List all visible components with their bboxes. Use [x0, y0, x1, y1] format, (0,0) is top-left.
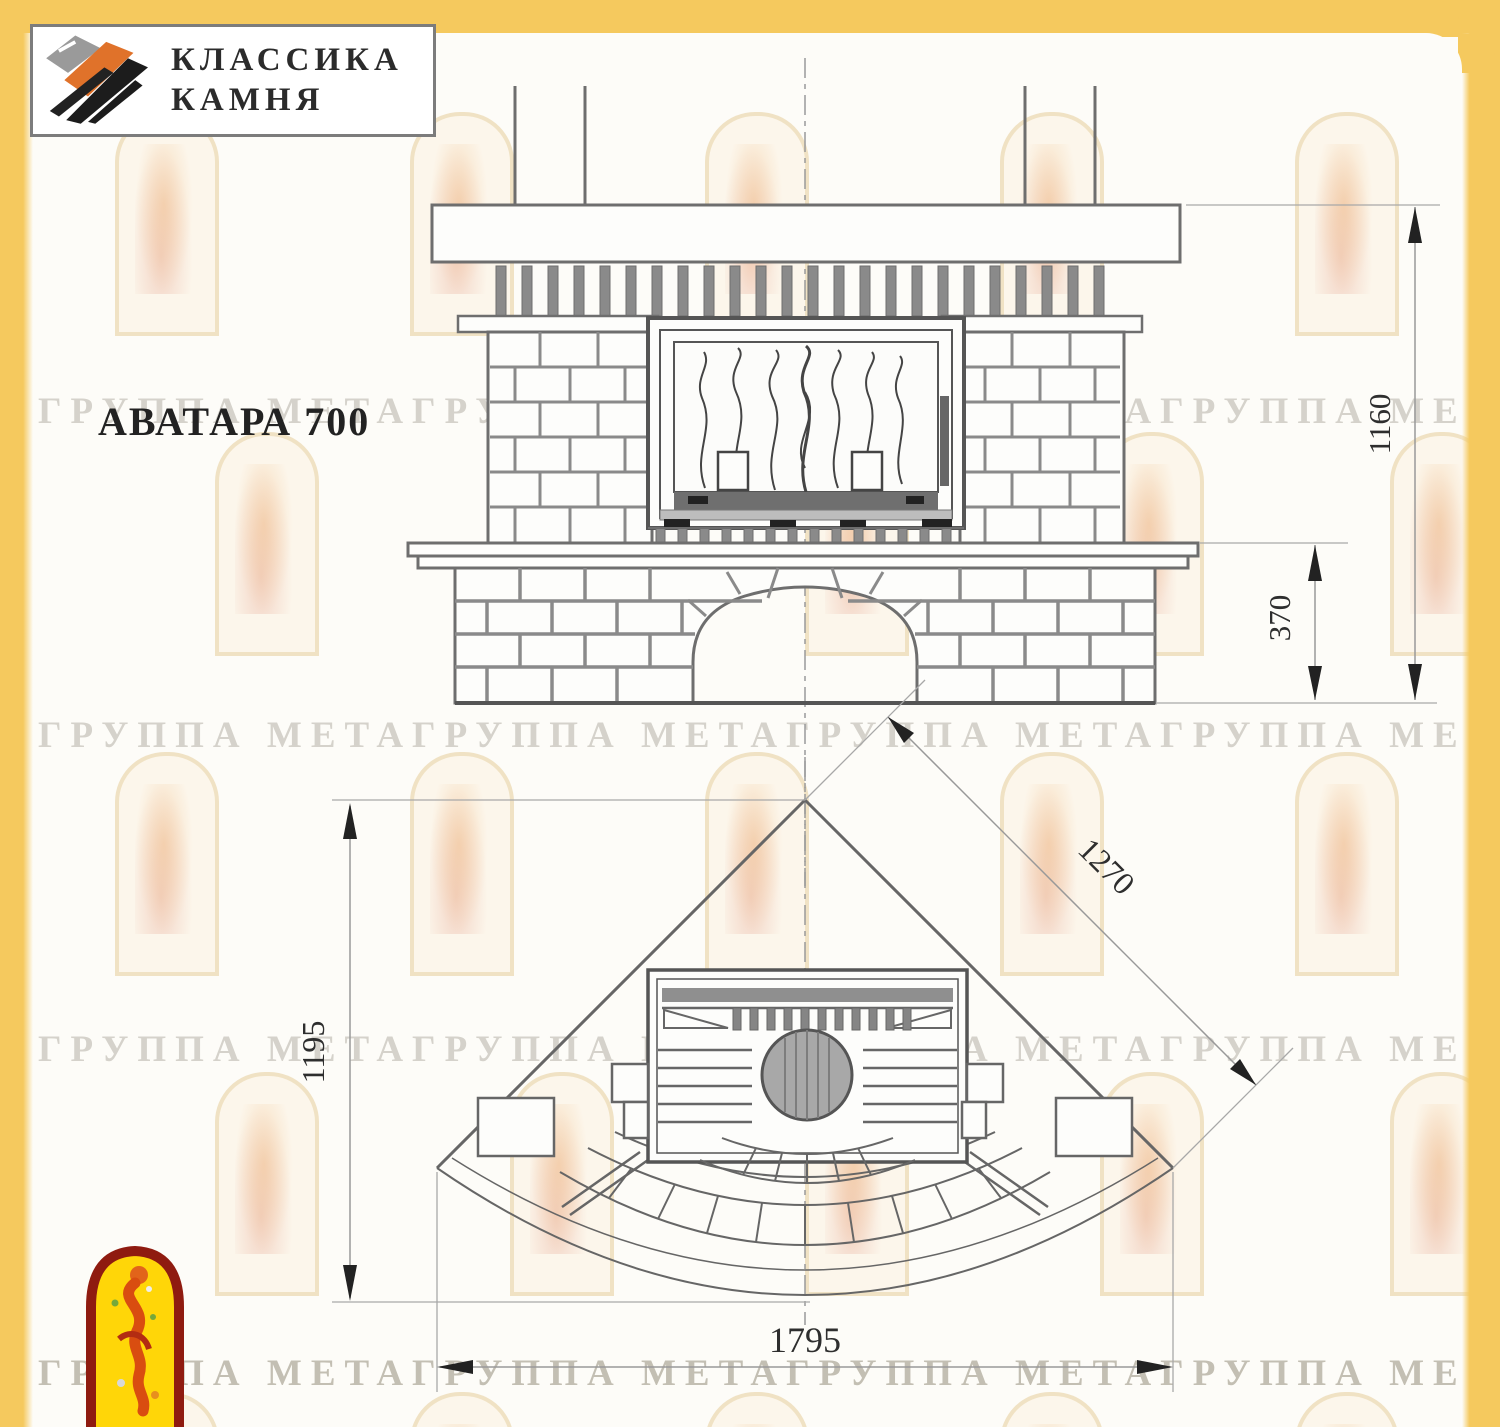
door-handle [688, 496, 708, 504]
dimension-height: 1160 [1362, 394, 1397, 455]
brand-name-line2: КАМНЯ [171, 81, 403, 121]
brand-name-line1: КЛАССИКА [171, 41, 403, 81]
firebox-plan [612, 970, 1003, 1183]
fireplace-technical-drawing: 1160 370 [0, 0, 1500, 1427]
mantel-shelf [432, 205, 1180, 262]
right-step [967, 1064, 1003, 1102]
dimension-plinth-height: 370 [1262, 595, 1297, 642]
frame-left-bar [0, 0, 33, 1427]
dimension-side-length: 1270 [1071, 831, 1142, 902]
firebox [648, 318, 964, 528]
right-cornice [942, 316, 1142, 332]
left-bench [478, 1098, 554, 1156]
door-latch [906, 496, 924, 504]
stone-logo-icon [33, 31, 163, 131]
elevation-dimensions: 1160 370 [1157, 205, 1440, 703]
door-bottom-band [674, 492, 938, 510]
hearth-shelf-upper [408, 543, 1198, 556]
log-right [852, 452, 882, 490]
left-step [612, 1064, 648, 1102]
page: ГРУППА МЕТАГРУППА МЕТАГРУППА МЕТАГРУППА … [0, 0, 1500, 1427]
under-firebox-dentil [648, 528, 964, 543]
hearth-shelf-lower [418, 556, 1188, 568]
log-left [718, 452, 748, 490]
brand-name: КЛАССИКА КАМНЯ [171, 41, 403, 120]
dentil-course [496, 266, 1104, 316]
brand-logo-box: КЛАССИКА КАМНЯ [30, 24, 436, 137]
dimension-width: 1795 [769, 1320, 841, 1360]
door-hinge [940, 396, 949, 486]
plan-view [437, 757, 1173, 1325]
left-cornice [458, 316, 658, 332]
dimension-depth: 1195 [295, 1021, 331, 1084]
front-elevation-view [408, 58, 1198, 886]
page-title: АВАТАРА 700 [98, 398, 370, 445]
arch-figure-icon [85, 1243, 185, 1427]
frame-right-bar [1462, 0, 1500, 1427]
back-wall-band [662, 988, 953, 1002]
right-bench [1056, 1098, 1132, 1156]
